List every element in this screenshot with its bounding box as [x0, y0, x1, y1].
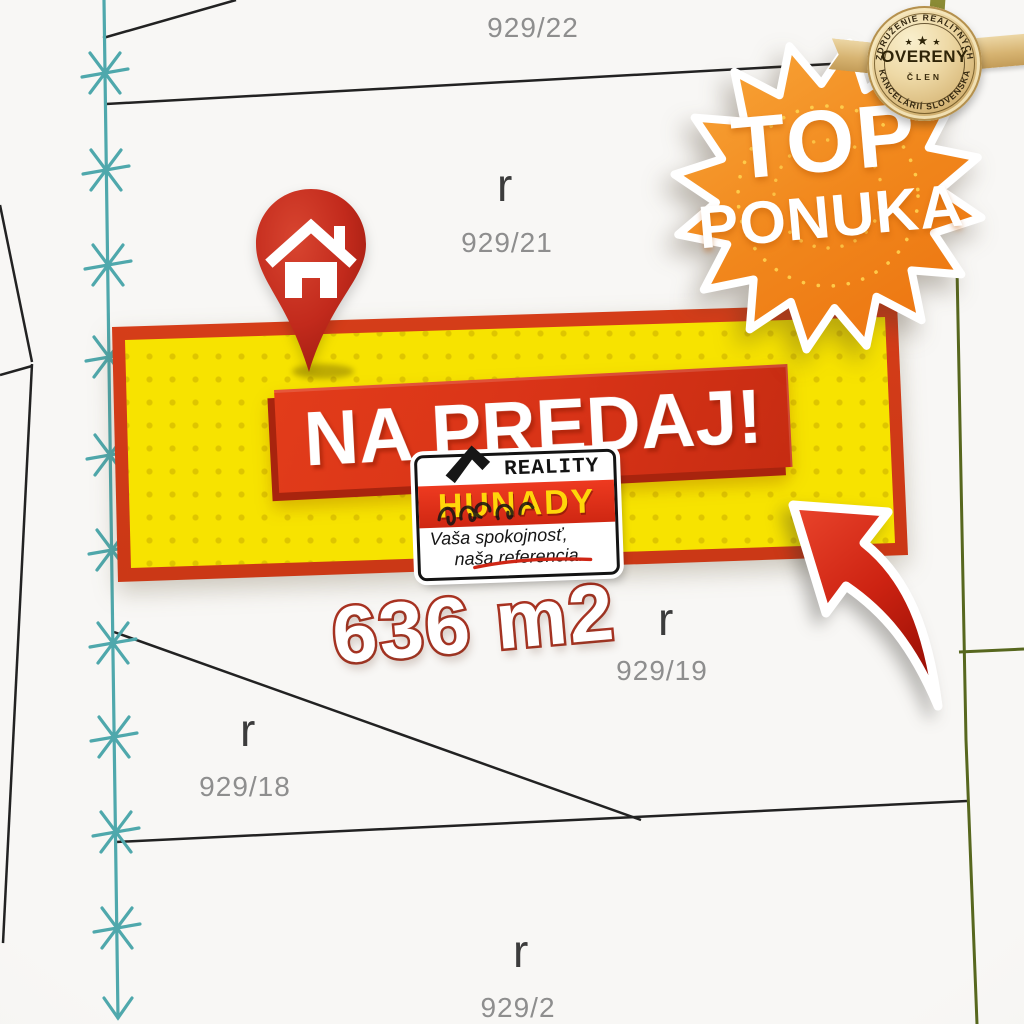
badge-subtitle: ČLEN: [867, 72, 982, 82]
badge-ribbon-right: [975, 34, 1024, 69]
agency-category: REALITY: [504, 455, 600, 481]
roof-icon: [444, 442, 493, 484]
star-icon: ★: [905, 37, 917, 47]
location-pin-icon: [251, 186, 371, 381]
agency-tagline: Vaša spokojnosť, naša referencia.: [419, 522, 616, 572]
listing-promo-image: 929/22 r 929/21 r 929/18 r 929/19 r 929/…: [0, 0, 1024, 1024]
agency-logo: REALITY HUNADY Vaša spokojnosť, naša ref…: [414, 449, 620, 582]
star-icon: ★: [932, 37, 944, 47]
agency-name-band: HUNADY: [418, 480, 615, 529]
verified-badge: ZDRUŽENIE REALITNÝCH KANCELÁRIÍ SLOVENSK…: [867, 6, 982, 121]
star-icon: ★: [917, 33, 933, 48]
curved-arrow-icon: [758, 468, 968, 728]
badge-title: OVERENÝ: [867, 47, 982, 67]
